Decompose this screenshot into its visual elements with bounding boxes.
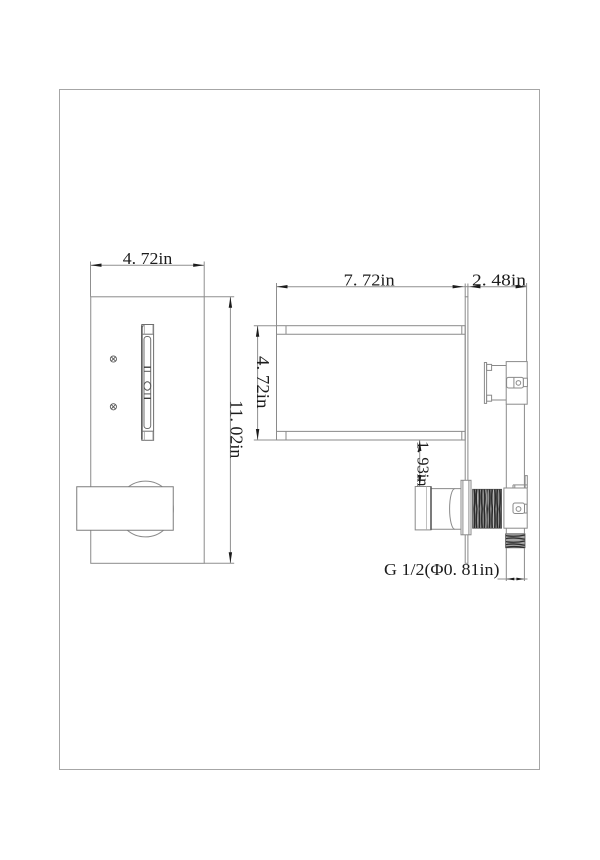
svg-text:4. 72in: 4. 72in [123,249,173,268]
svg-text:1. 93in: 1. 93in [413,441,432,487]
svg-text:7. 72in: 7. 72in [344,270,396,289]
svg-text:2. 48in: 2. 48in [472,270,527,289]
svg-text:G 1/2(Φ0. 81in): G 1/2(Φ0. 81in) [384,560,500,579]
svg-text:11. 02in: 11. 02in [227,400,247,458]
svg-text:4. 72in: 4. 72in [253,356,273,409]
